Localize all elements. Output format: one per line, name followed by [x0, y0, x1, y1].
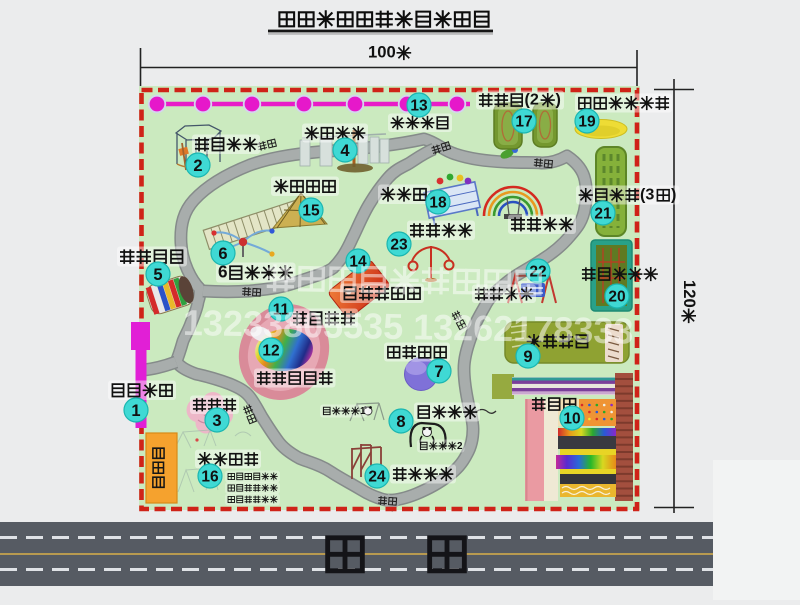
- svg-text:13233805535 13262178333: 13233805535 13262178333: [183, 302, 634, 352]
- svg-text:2: 2: [457, 441, 463, 452]
- svg-text:12: 12: [262, 343, 279, 360]
- svg-text:15: 15: [302, 203, 320, 220]
- svg-text:21: 21: [594, 206, 612, 223]
- svg-text:(2: (2: [525, 91, 539, 109]
- svg-text:(3: (3: [640, 186, 654, 204]
- svg-text:2: 2: [193, 157, 202, 175]
- svg-text:17: 17: [515, 114, 532, 131]
- svg-text:8: 8: [396, 413, 405, 431]
- svg-text:1: 1: [360, 406, 366, 417]
- svg-text:120: 120: [680, 280, 699, 308]
- svg-text:6: 6: [218, 245, 227, 263]
- svg-text:16: 16: [201, 469, 219, 486]
- svg-text:): ): [556, 91, 561, 109]
- svg-text:20: 20: [608, 289, 625, 306]
- svg-text:7: 7: [434, 363, 443, 381]
- svg-text:13: 13: [410, 98, 428, 115]
- svg-text:18: 18: [429, 195, 447, 212]
- svg-text:4: 4: [340, 142, 350, 160]
- svg-text:24: 24: [368, 469, 386, 486]
- svg-text:3: 3: [212, 412, 221, 430]
- svg-text:23: 23: [390, 237, 408, 254]
- svg-text:): ): [671, 186, 676, 204]
- svg-text:10: 10: [563, 411, 580, 428]
- svg-text:1: 1: [131, 402, 140, 420]
- svg-text:9: 9: [523, 348, 532, 366]
- svg-text:19: 19: [578, 114, 596, 131]
- svg-text:100: 100: [368, 43, 396, 62]
- svg-text:5: 5: [153, 266, 162, 284]
